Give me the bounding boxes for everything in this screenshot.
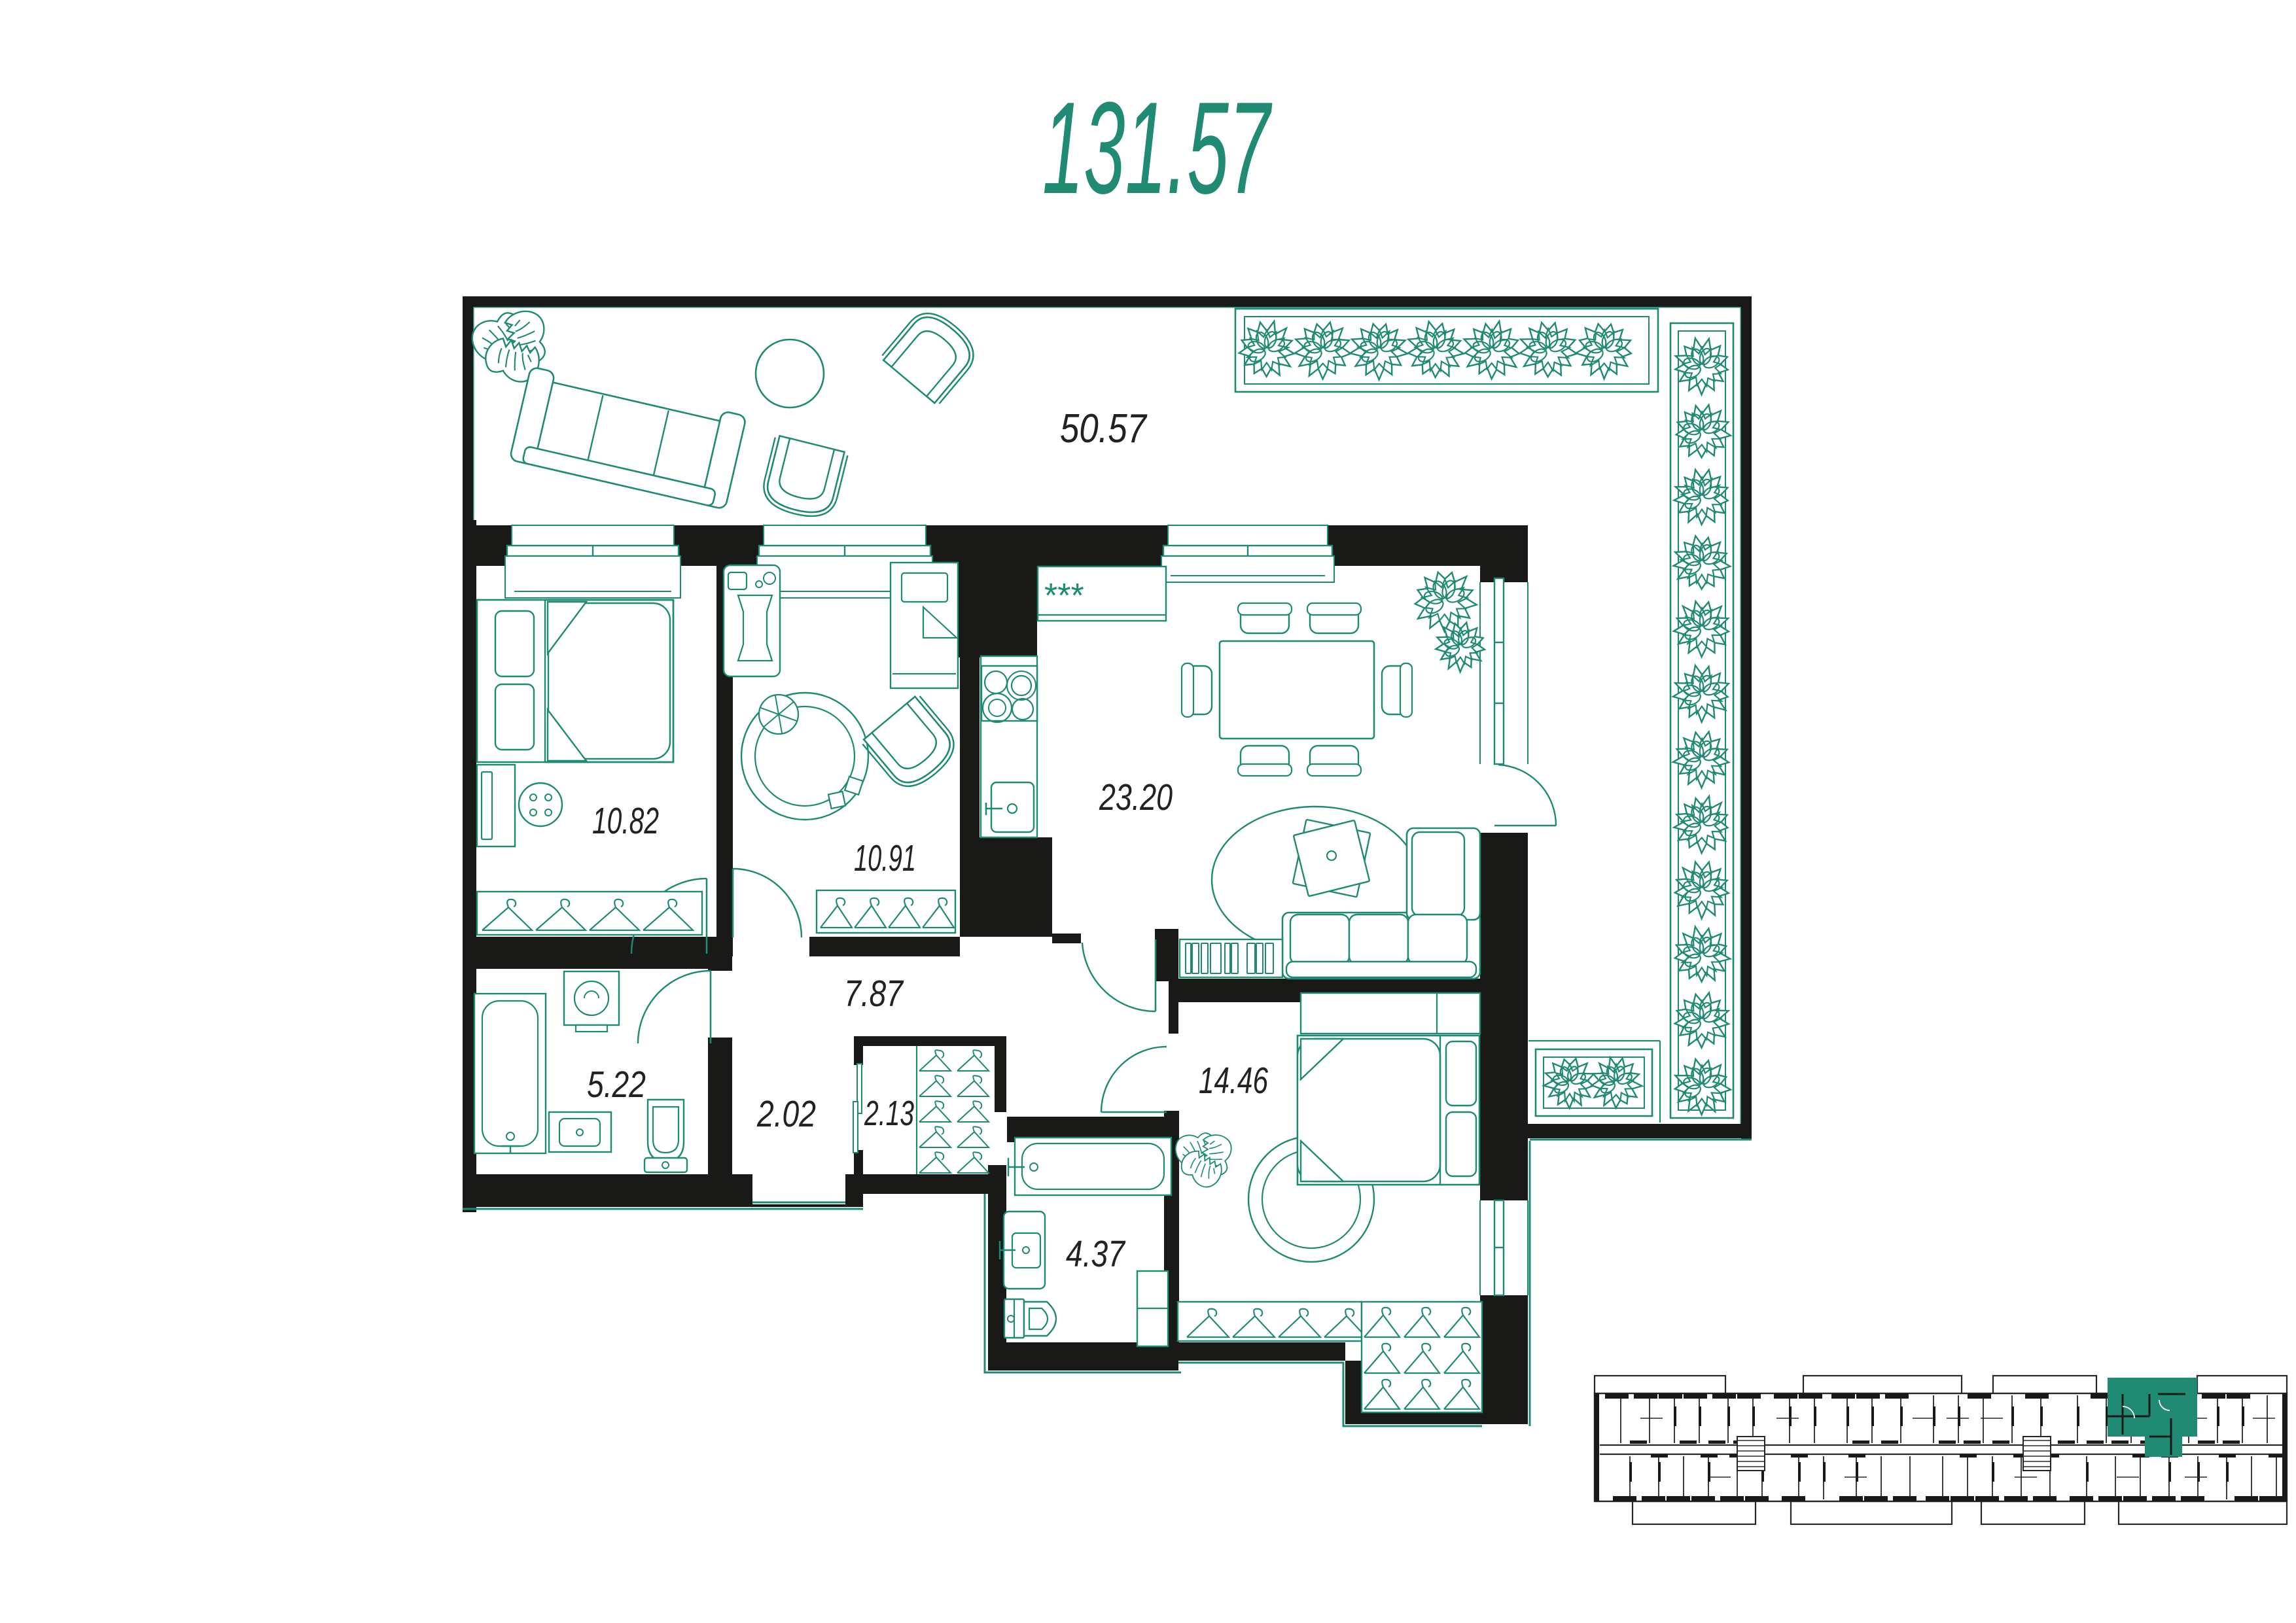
svg-text:7.87: 7.87: [844, 973, 904, 1015]
svg-text:4.37: 4.37: [1066, 1233, 1126, 1275]
svg-text:23.20: 23.20: [1099, 777, 1173, 818]
svg-text:10.82: 10.82: [592, 800, 659, 842]
svg-text:***: ***: [1044, 577, 1084, 615]
svg-text:131.57: 131.57: [1042, 75, 1273, 221]
svg-text:14.46: 14.46: [1199, 1060, 1268, 1102]
svg-text:10.91: 10.91: [854, 837, 916, 879]
svg-text:2.02: 2.02: [756, 1093, 816, 1135]
svg-text:50.57: 50.57: [1060, 406, 1148, 451]
svg-text:2.13: 2.13: [864, 1094, 914, 1133]
svg-text:5.22: 5.22: [587, 1064, 646, 1106]
